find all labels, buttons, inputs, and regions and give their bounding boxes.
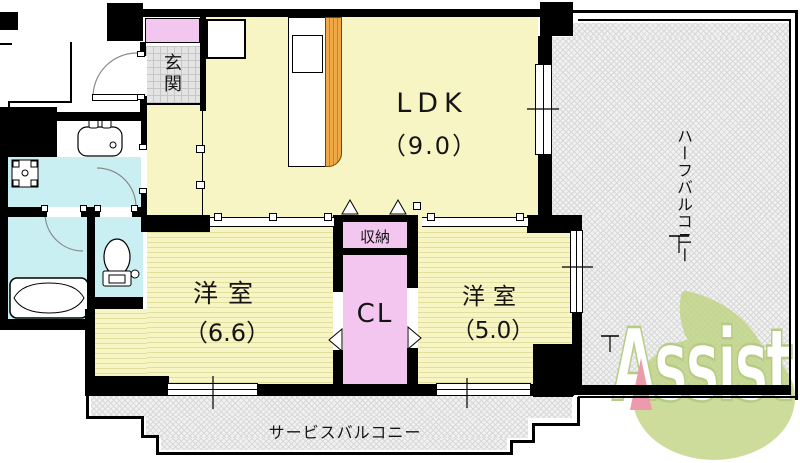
storage-folding-door-marker: [342, 200, 358, 214]
service-balcony-label: サービスバルコニー: [260, 419, 430, 443]
floor-plan: Assist: [0, 0, 800, 463]
closet-door-marker-right: [408, 327, 421, 349]
closet-label: CL: [341, 299, 409, 329]
storage-folding-door-marker: [390, 200, 406, 214]
storage-label: 収納: [338, 226, 412, 247]
half-balcony-label: ハーフバルコニー: [671, 128, 695, 268]
closet-door-marker-left: [329, 329, 342, 351]
ldk-label: LDK: [377, 88, 487, 119]
ldk-size-label: （9.0）: [365, 126, 495, 161]
bedroom-left-size-label: （6.6）: [157, 313, 297, 348]
entrance-label: 玄関: [162, 53, 184, 95]
bedroom-left-label: 洋室: [168, 274, 288, 310]
bedroom-right-size-label: （5.0）: [423, 311, 563, 345]
bedroom-right-label: 洋室: [433, 277, 553, 311]
